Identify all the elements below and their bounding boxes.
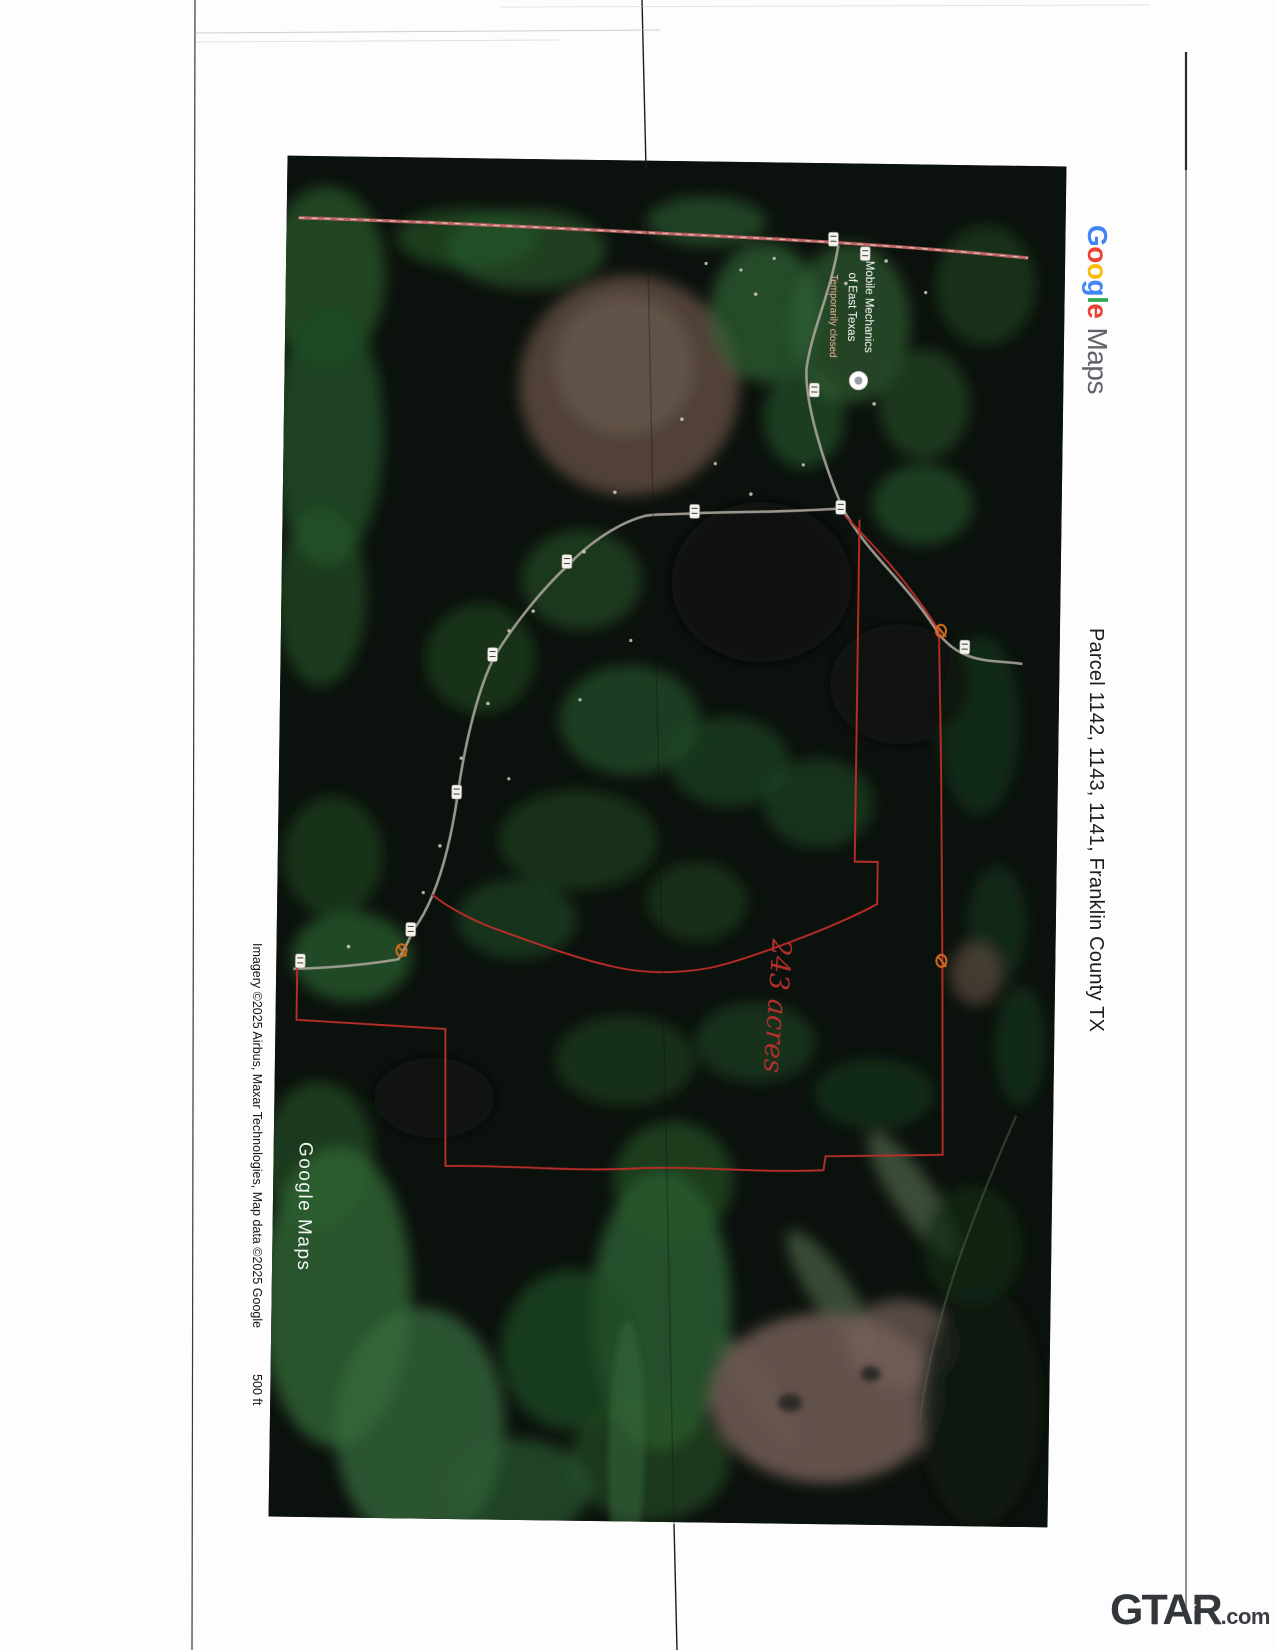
logo-maps-word: Maps — [1082, 327, 1113, 393]
map-watermark: Google Maps — [293, 1142, 316, 1272]
logo-letter: G — [1082, 225, 1113, 246]
satellite-map: Mobile Mechanics of East Texas Temporari… — [269, 156, 1067, 1528]
attribution-text: Imagery ©2025 Airbus, Maxar Technologies… — [250, 943, 264, 1328]
google-maps-logo: GoogleMaps — [1081, 225, 1113, 394]
gtar-logo: GTAR.com ★ — [1110, 1586, 1275, 1646]
satellite-map-canvas: Mobile Mechanics of East Texas Temporari… — [269, 156, 1067, 1528]
gtar-brand-text: GTAR — [1110, 1586, 1221, 1634]
poi-circle-icon — [849, 371, 867, 389]
map-attribution: Imagery ©2025 Airbus, Maxar Technologies… — [250, 943, 264, 1405]
star-icon: ★ — [1187, 1599, 1198, 1613]
parcel-caption: Parcel 1142, 1143, 1141, Franklin County… — [1084, 628, 1107, 1032]
scale-bar-label: 500 ft — [250, 1374, 264, 1405]
poi-status: Temporarily closed — [827, 274, 839, 358]
poi-name-line2: of East Texas — [845, 272, 858, 341]
gtar-com-text: .com — [1221, 1604, 1270, 1629]
poi-name-line1: Mobile Mechanics — [862, 261, 875, 353]
